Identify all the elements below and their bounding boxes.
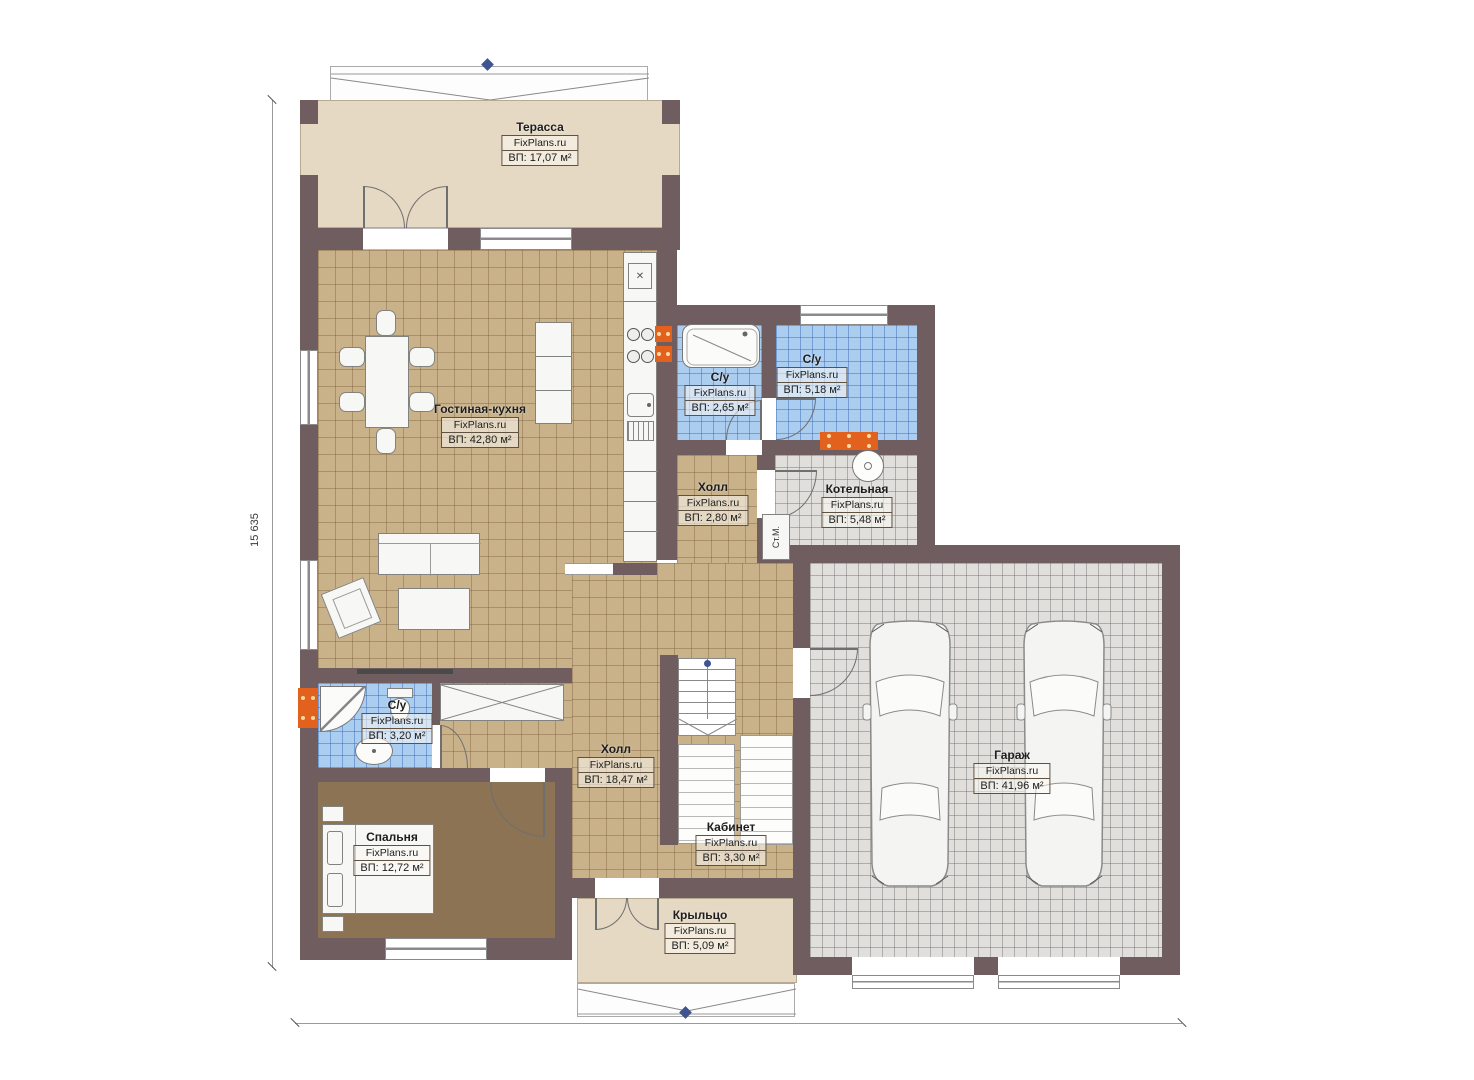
vent-icon: ✕ [628,263,652,289]
room-label-boiler: Котельная FixPlans.ru ВП: 5,48 м² [821,482,892,528]
room-name: С/у [684,370,755,384]
pillow [327,873,343,907]
brand-text: FixPlans.ru [777,368,846,382]
bathtub [682,324,760,368]
room-area: ВП: 2,80 м² [678,510,747,525]
room-label-wc-bottom: С/у FixPlans.ru ВП: 3,20 м² [361,698,432,744]
terrace-floor [300,100,680,228]
room-label-wc-top: С/у FixPlans.ru ВП: 2,65 м² [684,370,755,416]
wall-terrace-stub [300,100,318,124]
garage-gate-sill [852,975,974,989]
floor-plan: 15 635 15 790 [0,0,1474,1080]
nightstand [322,916,344,932]
wall-terrace-stub [300,175,318,228]
gas-burner-strip [820,432,878,450]
wall-terrace-stub [662,175,680,228]
room-label-garage: Гараж FixPlans.ru ВП: 41,96 м² [973,748,1050,794]
garage-gate-opening [998,957,1120,975]
wall-under-bathrooms [677,440,935,455]
garage-gate-opening [852,957,974,975]
counter-divider [624,301,658,302]
room-label-porch: Крыльцо FixPlans.ru ВП: 5,09 м² [664,908,735,954]
dishwasher [627,421,654,441]
brand-text: FixPlans.ru [442,418,517,432]
staircase [678,658,736,736]
brand-text: FixPlans.ru [665,924,734,938]
tv-console [357,669,453,674]
radiator [655,326,672,342]
door-opening-wc-bottom [432,725,440,768]
brand-text: FixPlans.ru [696,836,765,850]
room-name: Спальня [353,830,430,844]
wall-garage-right [1162,545,1180,975]
window [480,228,572,250]
room-name: Холл [677,480,748,494]
wall-garage-left [793,563,810,975]
passage-threshold [565,563,613,575]
stove-burners [626,323,654,367]
room-name: С/у [776,352,847,366]
terrace-awning [330,66,648,102]
stair-center-line [707,659,708,719]
counter-divider [624,501,658,502]
room-area: ВП: 18,47 м² [578,772,653,787]
room-label-wc-right: С/у FixPlans.ru ВП: 5,18 м² [776,352,847,398]
wall-stairs-left [660,655,678,845]
wall-terrace-stub [662,100,680,124]
toilet-tank [387,688,413,698]
sofa [378,533,480,575]
bathtub-lines [683,325,761,369]
door-opening-boiler [757,470,775,518]
nightstand [322,806,344,822]
faucet-dot [647,403,651,407]
pillow [327,831,343,865]
counter-divider [624,471,658,472]
brand-text: FixPlans.ru [362,714,431,728]
room-area: ВП: 5,09 м² [665,938,734,953]
room-area: ВП: 41,96 м² [974,778,1049,793]
brand-text: FixPlans.ru [578,758,653,772]
room-name: Котельная [821,482,892,496]
chair [339,392,365,412]
window [300,560,318,650]
room-label-hall-small: Холл FixPlans.ru ВП: 2,80 м² [677,480,748,526]
room-area: ВП: 3,20 м² [362,728,431,743]
room-label-hall-main: Холл FixPlans.ru ВП: 18,47 м² [577,742,654,788]
door-opening-garage [793,648,810,698]
room-label-living-kitchen: Гостиная-кухня FixPlans.ru ВП: 42,80 м² [434,402,526,448]
room-label-bedroom: Спальня FixPlans.ru ВП: 12,72 м² [353,830,430,876]
door-opening-wc-top [726,440,762,455]
boiler-inner [864,462,872,470]
brand-text: FixPlans.ru [678,496,747,510]
room-area: ВП: 12,72 м² [354,860,429,875]
dimension-line-bottom [295,1023,1182,1024]
room-name: Гостиная-кухня [434,402,526,416]
coffee-table [398,588,470,630]
chair [409,347,435,367]
room-label-terrace: Терасса FixPlans.ru ВП: 17,07 м² [501,120,578,166]
faucet-dot [372,749,376,753]
dimension-line-left [272,100,273,968]
dining-table [365,336,409,428]
wall-garage-top [757,545,1180,563]
kitchen-island [535,322,572,424]
stair-break-lines [679,717,737,737]
wardrobe-cross-lines [441,685,563,720]
room-name: Гараж [973,748,1050,762]
wall-kitchen-divider [657,250,677,560]
room-area: ВП: 5,48 м² [822,512,891,527]
wall-hall-stub [613,563,657,575]
room-name: С/у [361,698,432,712]
brand-text: FixPlans.ru [822,498,891,512]
chair [376,428,396,454]
door-opening-entrance [595,878,659,898]
room-label-cabinet: Кабинет FixPlans.ru ВП: 3,30 м² [695,820,766,866]
room-name: Терасса [501,120,578,134]
wall-right-section-right [917,305,935,563]
washing-machine-label: Ст.М. [771,526,781,548]
boiler-unit [852,450,884,482]
window [800,305,888,325]
car-top-view [862,616,958,894]
room-name: Холл [577,742,654,756]
counter-divider [624,531,658,532]
room-area: ВП: 5,18 м² [777,382,846,397]
stair-start-marker [704,660,711,667]
room-area: ВП: 2,65 м² [685,400,754,415]
chair [339,347,365,367]
door-opening-wc-right [762,398,776,440]
armchair-seat [332,588,372,629]
room-area: ВП: 17,07 м² [502,150,577,165]
brand-text: FixPlans.ru [974,764,1049,778]
room-name: Кабинет [695,820,766,834]
brand-text: FixPlans.ru [354,846,429,860]
sofa-cushion-line [430,543,431,576]
washing-machine: Ст.М. [762,514,790,560]
window [385,938,487,960]
radiator [298,688,318,728]
room-area: ВП: 42,80 м² [442,432,517,447]
dimension-label-left: 15 635 [249,513,261,547]
room-area: ВП: 3,30 м² [696,850,765,865]
door-opening-terrace [363,228,448,250]
kitchen-counter: ✕ [623,252,657,562]
chair [409,392,435,412]
wall-bedroom-right [555,768,572,960]
kitchen-sink [627,393,654,417]
radiator [655,346,672,362]
window [300,350,318,425]
door-opening-bedroom [490,768,545,782]
chair [376,310,396,336]
room-name: Крыльцо [664,908,735,922]
brand-text: FixPlans.ru [685,386,754,400]
garage-gate-sill [998,975,1120,989]
brand-text: FixPlans.ru [502,136,577,150]
awning-lines [331,67,649,103]
wardrobe [440,684,564,721]
